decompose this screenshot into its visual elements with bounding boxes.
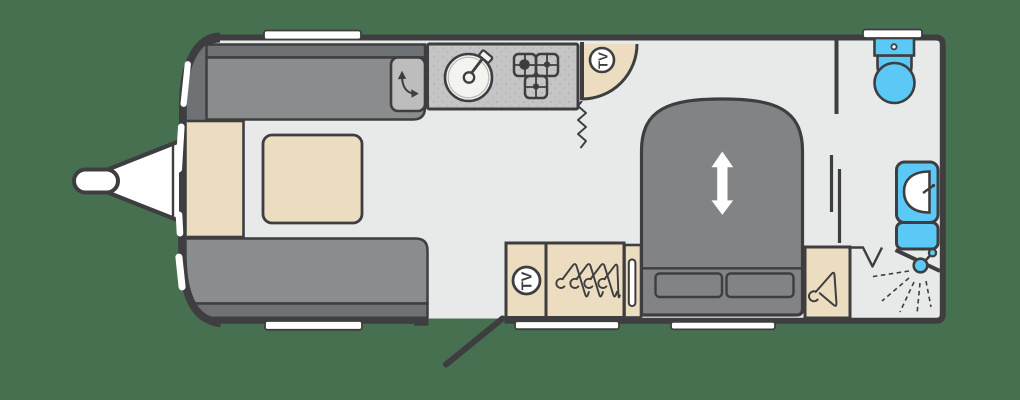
svg-text:TV: TV [596,52,611,69]
svg-text:TV: TV [520,271,536,290]
